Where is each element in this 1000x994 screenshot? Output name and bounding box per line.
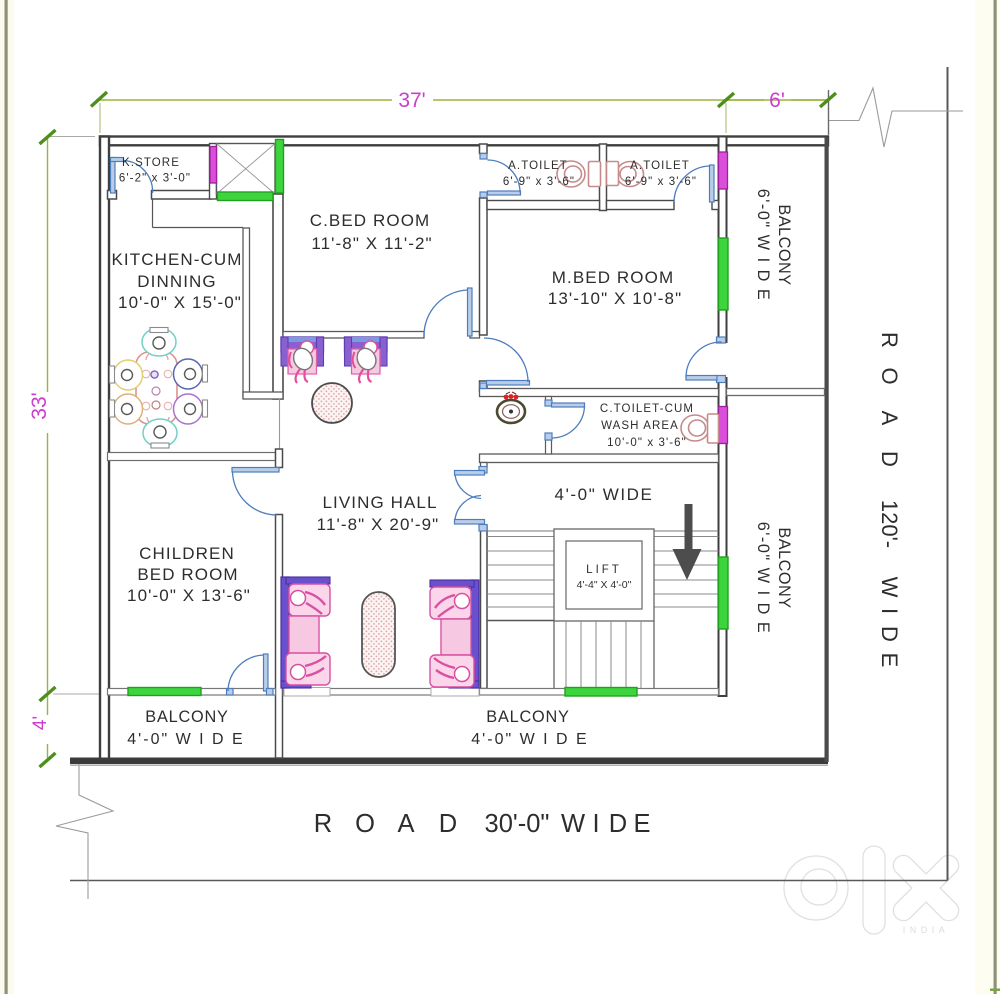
svg-text:A.TOILET: A.TOILET [508,160,568,172]
svg-text:E: E [633,810,650,838]
svg-text:C.TOILET-CUM: C.TOILET-CUM [600,403,694,415]
svg-text:R: R [314,810,332,838]
svg-text:13'-10" X 10'-8": 13'-10" X 10'-8" [548,289,682,308]
svg-text:A: A [877,411,902,426]
svg-text:6': 6' [769,89,785,112]
svg-text:4'-0" W I D E: 4'-0" W I D E [471,731,588,748]
svg-text:4'-4" X 4'-0": 4'-4" X 4'-0" [577,579,632,591]
svg-text:6'-2" x 3'-0": 6'-2" x 3'-0" [119,173,191,185]
svg-text:4': 4' [30,716,51,730]
svg-text:D: D [439,810,457,838]
svg-text:BED ROOM: BED ROOM [137,565,238,584]
svg-text:BALCONY: BALCONY [775,204,793,285]
svg-text:D: D [877,451,902,467]
svg-text:A: A [397,810,414,838]
svg-text:30'-0": 30'-0" [485,810,550,838]
svg-text:A.TOILET: A.TOILET [630,160,690,172]
svg-text:120'-: 120'- [877,500,902,548]
svg-text:BALCONY: BALCONY [145,708,228,726]
svg-text:6'-9" x 3'-6": 6'-9" x 3'-6" [625,176,697,188]
svg-text:4'-0" W I D E: 4'-0" W I D E [127,731,244,748]
svg-text:I: I [592,810,599,838]
svg-text:R: R [877,332,902,348]
svg-text:WASH AREA: WASH AREA [601,420,679,432]
svg-text:11'-8" X 11'-2": 11'-8" X 11'-2" [311,234,432,253]
svg-text:10'-0" X 13'-6": 10'-0" X 13'-6" [127,586,251,605]
svg-text:O: O [877,367,902,384]
svg-text:6'-0" W I D E: 6'-0" W I D E [754,522,772,635]
svg-text:10'-0" X 15'-0": 10'-0" X 15'-0" [118,293,242,312]
svg-text:D: D [877,626,902,642]
svg-text:M.BED ROOM: M.BED ROOM [552,268,674,287]
svg-text:6'-9" x 3'-6": 6'-9" x 3'-6" [503,176,575,188]
svg-text:37': 37' [398,89,425,112]
svg-text:DINNING: DINNING [137,272,216,291]
svg-text:INDIA: INDIA [903,925,950,935]
svg-text:33': 33' [28,392,51,419]
svg-text:E: E [877,653,902,668]
svg-text:6'-0" W I D E: 6'-0" W I D E [754,189,772,302]
svg-text:BALCONY: BALCONY [486,708,569,726]
svg-text:W: W [877,577,902,598]
svg-text:CHILDREN: CHILDREN [139,544,235,563]
svg-text:LIVING HALL: LIVING HALL [322,493,437,512]
svg-text:4'-0" WIDE: 4'-0" WIDE [555,485,654,504]
svg-text:I: I [877,608,902,614]
svg-text:K.STORE: K.STORE [122,157,180,169]
svg-text:D: D [609,810,627,838]
svg-text:BALCONY: BALCONY [775,527,793,608]
svg-text:KITCHEN-CUM: KITCHEN-CUM [111,250,242,269]
svg-text:11'-8" X 20'-9": 11'-8" X 20'-9" [317,515,440,534]
svg-text:10'-0" x 3'-6": 10'-0" x 3'-6" [607,437,687,449]
svg-text:O: O [355,810,375,838]
svg-text:W: W [561,810,585,838]
svg-text:C.BED ROOM: C.BED ROOM [310,211,431,230]
svg-text:LIFT: LIFT [586,564,622,576]
